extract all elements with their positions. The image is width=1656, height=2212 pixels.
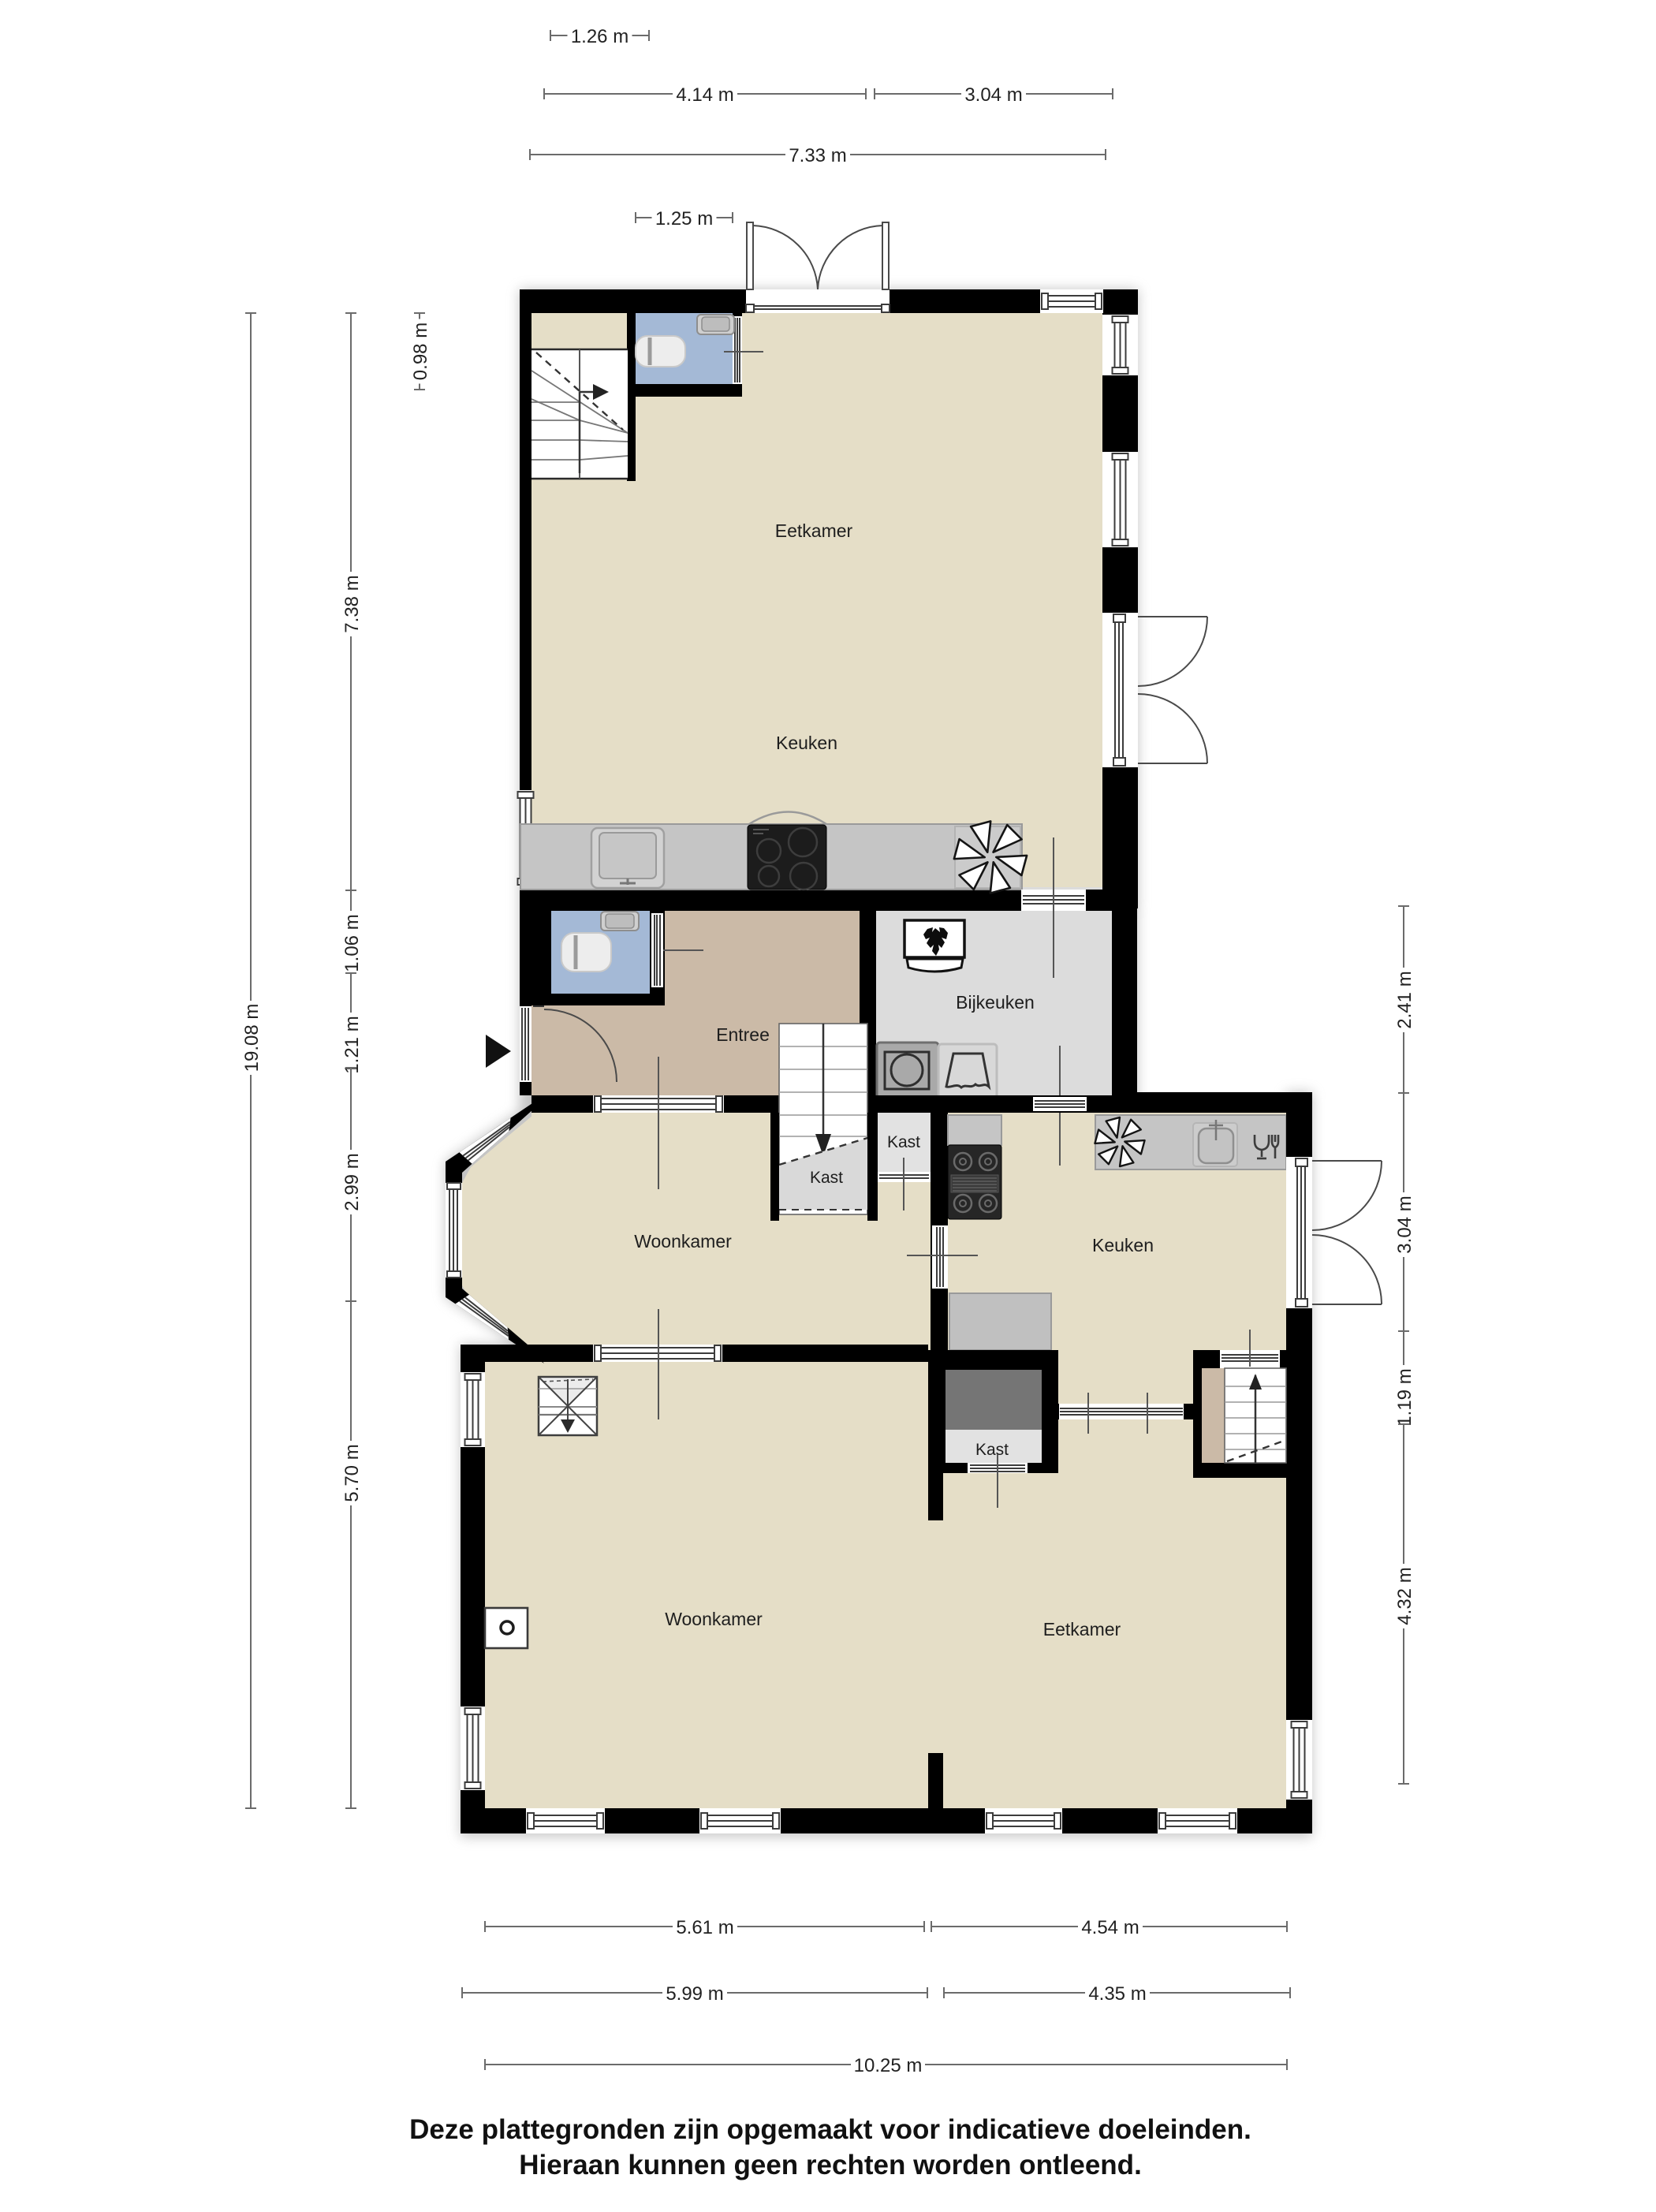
svg-text:Keuken: Keuken [1092,1235,1154,1255]
svg-text:1.19 m: 1.19 m [1394,1368,1415,1426]
svg-text:4.35 m: 4.35 m [1088,1983,1146,2005]
svg-text:0.98 m: 0.98 m [410,323,431,380]
svg-text:7.38 m: 7.38 m [341,575,363,632]
svg-text:4.54 m: 4.54 m [1081,1917,1139,1938]
svg-text:4.14 m: 4.14 m [676,84,733,106]
svg-text:Deze plattegronden zijn opgema: Deze plattegronden zijn opgemaakt voor i… [409,2114,1251,2145]
svg-text:Woonkamer: Woonkamer [634,1231,732,1251]
svg-text:Kast: Kast [810,1169,843,1187]
svg-text:5.70 m: 5.70 m [341,1444,363,1501]
svg-text:4.32 m: 4.32 m [1394,1567,1415,1624]
svg-text:Entree: Entree [716,1024,770,1045]
svg-text:10.25 m: 10.25 m [854,2055,923,2076]
svg-text:2.41 m: 2.41 m [1394,971,1415,1028]
svg-text:7.33 m: 7.33 m [789,145,846,166]
svg-text:Hieraan kunnen geen rechten wo: Hieraan kunnen geen rechten worden ontle… [519,2150,1142,2180]
svg-text:1.06 m: 1.06 m [341,914,363,972]
svg-text:5.99 m: 5.99 m [666,1983,723,2005]
svg-text:2.99 m: 2.99 m [341,1153,363,1210]
svg-text:Keuken: Keuken [776,733,837,753]
svg-text:19.08 m: 19.08 m [241,1004,263,1072]
svg-text:5.61 m: 5.61 m [676,1917,733,1938]
svg-text:1.26 m: 1.26 m [571,26,628,47]
svg-text:1.25 m: 1.25 m [655,208,713,229]
svg-text:1.21 m: 1.21 m [341,1016,363,1073]
svg-text:Eetkamer: Eetkamer [775,520,853,541]
svg-text:Kast: Kast [975,1441,1009,1459]
svg-text:3.04 m: 3.04 m [1394,1196,1415,1253]
svg-text:Woonkamer: Woonkamer [665,1609,763,1629]
svg-text:3.04 m: 3.04 m [964,84,1022,106]
svg-text:Kast: Kast [887,1133,920,1151]
svg-text:Eetkamer: Eetkamer [1043,1619,1121,1639]
svg-text:Bijkeuken: Bijkeuken [956,992,1035,1013]
